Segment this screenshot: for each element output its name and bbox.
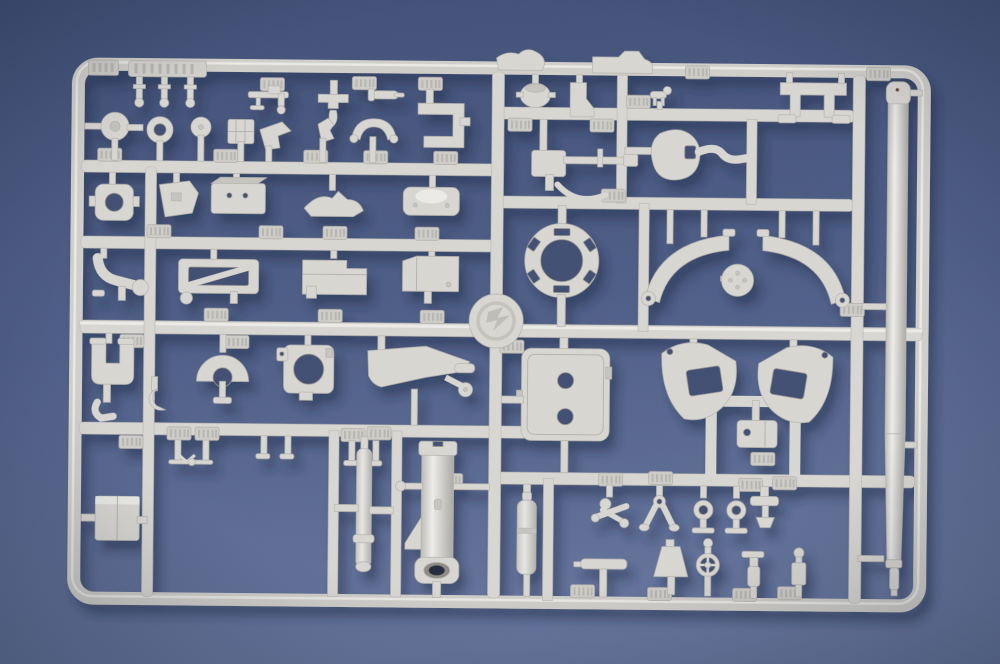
sprue-photo: [0, 0, 1000, 664]
photo-canvas: [0, 0, 1000, 664]
vignette: [0, 0, 1000, 664]
